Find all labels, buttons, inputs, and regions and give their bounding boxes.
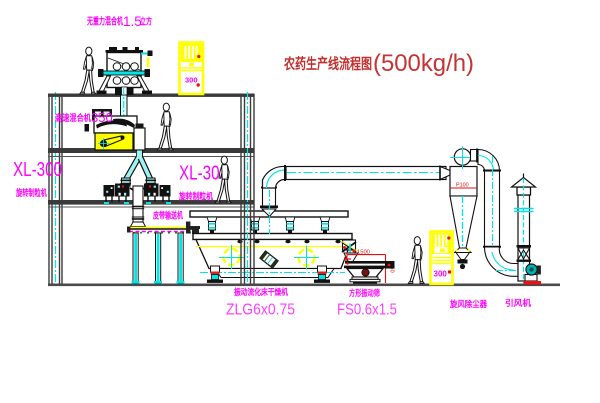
svg-text:引风机: 引风机 [505,298,531,308]
svg-text:300: 300 [185,76,198,85]
svg-text:XL-300: XL-300 [13,159,62,181]
svg-text:1.5: 1.5 [123,14,142,29]
svg-text:1500: 1500 [357,250,370,256]
svg-text:高速混合机: 高速混合机 [55,112,91,123]
svg-text:P100: P100 [456,183,469,189]
svg-text:旋转制粒机: 旋转制粒机 [178,191,213,202]
svg-text:旋风除尘器: 旋风除尘器 [449,299,487,309]
svg-text:农药生产线流程图: 农药生产线流程图 [283,55,372,73]
svg-text:振动流化床干燥机: 振动流化床干燥机 [234,287,288,297]
svg-text:(500kg/h): (500kg/h) [373,50,474,77]
svg-text:皮带输送机: 皮带输送机 [152,210,183,221]
svg-text:立方: 立方 [140,16,152,27]
svg-text:方形振动筛: 方形振动筛 [349,288,380,298]
svg-text:旋转制粒机: 旋转制粒机 [15,187,47,198]
svg-text:ZLG6x0.75: ZLG6x0.75 [226,302,295,319]
svg-text:无重力混合机: 无重力混合机 [86,16,123,28]
svg-text:350: 350 [91,110,113,125]
svg-text:300: 300 [434,270,448,279]
svg-text:FS0.6x1.5: FS0.6x1.5 [337,302,397,319]
